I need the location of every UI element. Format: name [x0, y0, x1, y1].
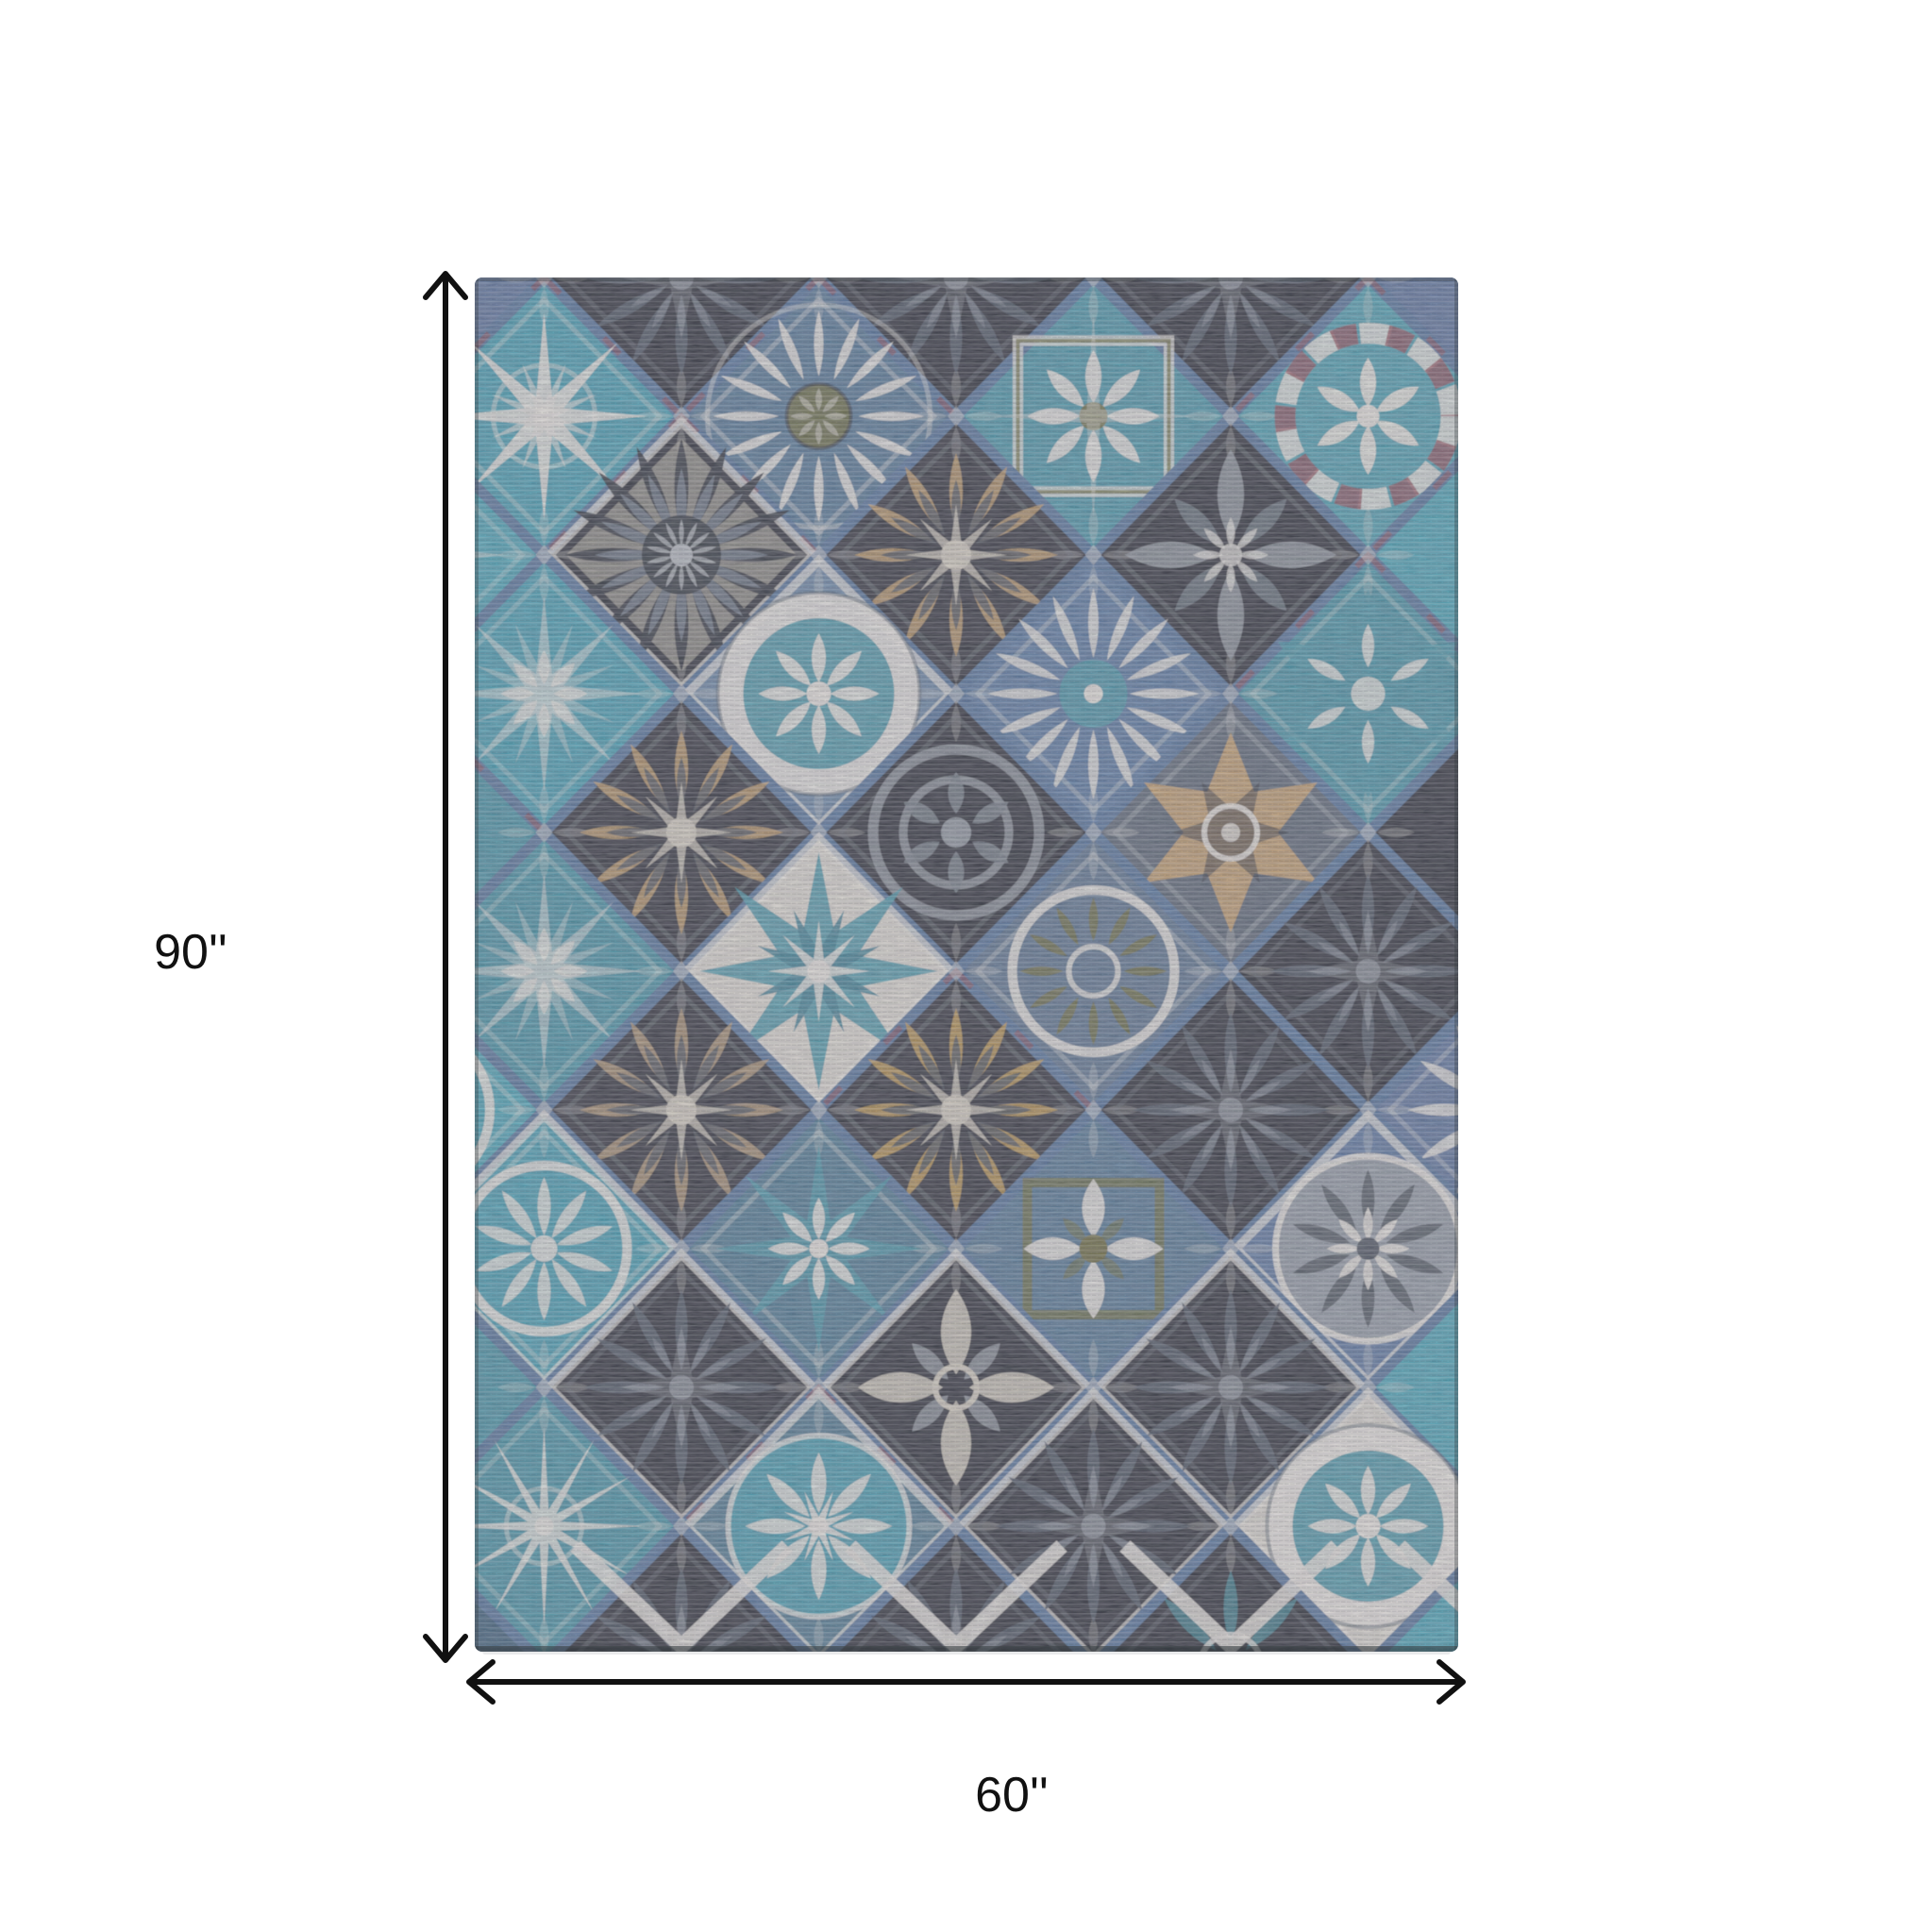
svg-text:90'': 90''	[154, 925, 227, 980]
svg-text:60'': 60''	[975, 1768, 1049, 1823]
